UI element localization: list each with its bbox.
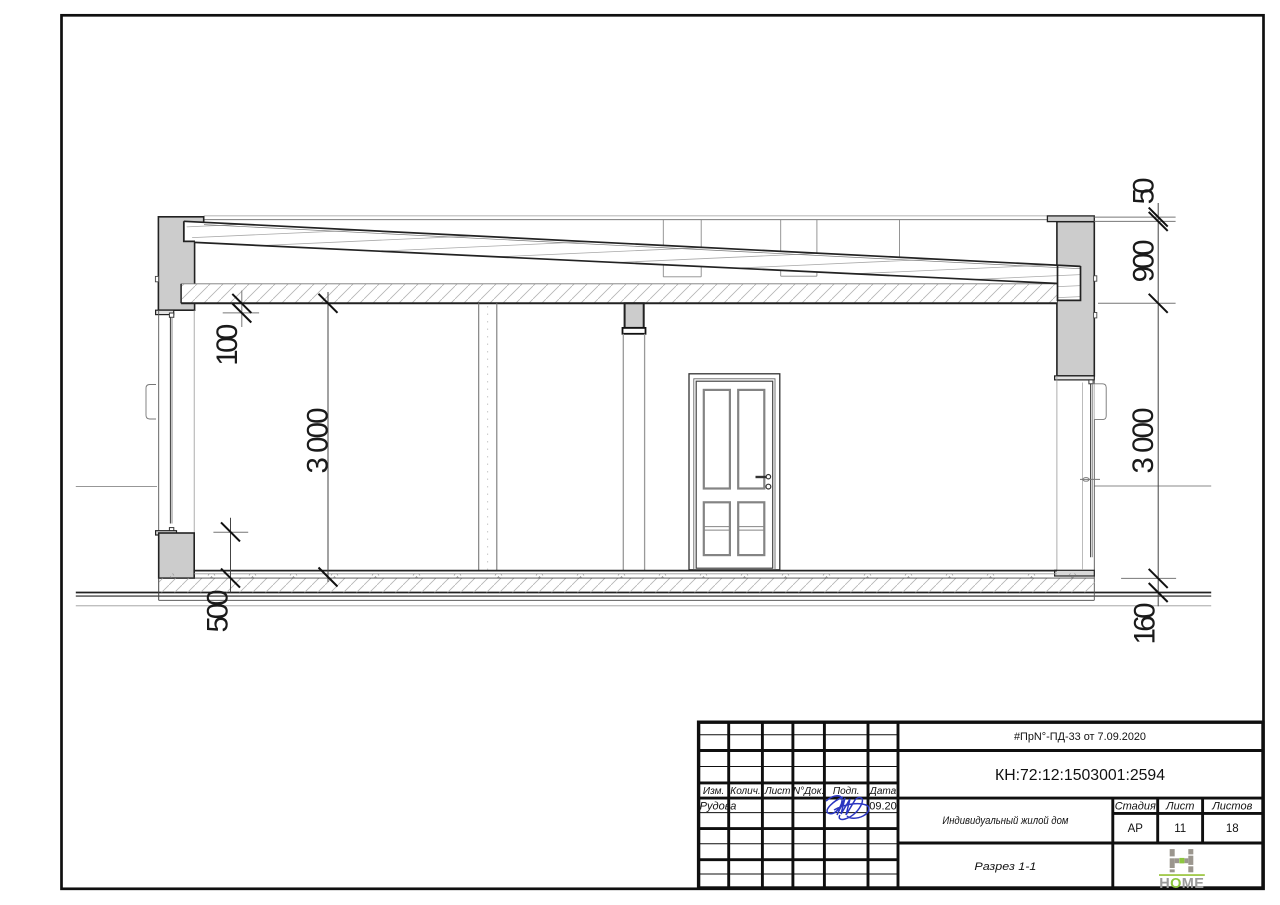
svg-text:Листов: Листов [1211,801,1252,813]
svg-text:Рудова: Рудова [700,801,737,813]
svg-text:18: 18 [1226,823,1239,835]
svg-text:Колич.: Колич. [730,786,760,797]
svg-text:Лист: Лист [1165,801,1194,813]
svg-text:Индивидуальный жилой дом: Индивидуальный жилой дом [942,815,1068,827]
svg-text:АР: АР [1128,823,1144,835]
svg-text:N°Док.: N°Док. [793,786,824,797]
svg-text:Изм.: Изм. [703,786,724,797]
svg-text:100: 100 [211,324,244,366]
svg-text:09.20: 09.20 [869,801,897,813]
svg-text:Стадия: Стадия [1115,801,1156,813]
svg-text:HOME: HOME [1159,876,1204,892]
svg-text:Разрез 1-1: Разрез 1-1 [974,861,1036,873]
svg-text:11: 11 [1174,823,1186,835]
svg-text:КН:72:12:1503001:2594: КН:72:12:1503001:2594 [995,767,1165,784]
svg-text:#ПрN°-ПД-33 от 7.09.2020: #ПрN°-ПД-33 от 7.09.2020 [1014,731,1146,743]
svg-text:160: 160 [1129,603,1162,645]
svg-text:900: 900 [1128,239,1161,282]
svg-text:50: 50 [1128,177,1161,204]
svg-text:Дата: Дата [869,786,897,797]
svg-text:Лист: Лист [764,786,791,797]
svg-text:3 000: 3 000 [1127,408,1160,474]
svg-text:3 000: 3 000 [302,408,335,474]
svg-text:500: 500 [202,590,235,633]
